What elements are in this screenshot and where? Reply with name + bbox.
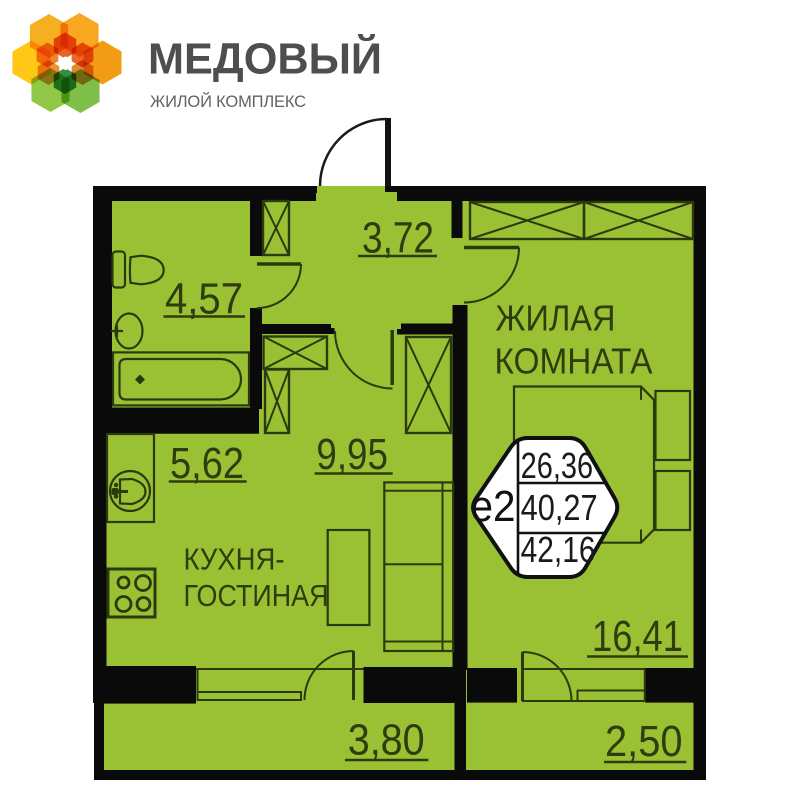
svg-text:КОМНАТА: КОМНАТА [495,341,653,382]
svg-text:26,36: 26,36 [521,445,594,486]
svg-text:3,80: 3,80 [348,716,425,765]
svg-text:е2: е2 [471,482,516,531]
svg-text:9,95: 9,95 [316,430,388,479]
svg-text:2,50: 2,50 [605,717,683,766]
svg-text:МЕДОВЫЙ: МЕДОВЫЙ [148,33,382,84]
svg-text:ЖИЛОЙ КОМПЛЕКС: ЖИЛОЙ КОМПЛЕКС [150,92,306,111]
svg-text:КУХНЯ-: КУХНЯ- [184,542,285,577]
svg-text:42,16: 42,16 [521,529,596,570]
svg-text:40,27: 40,27 [521,487,598,528]
svg-text:ГОСТИНАЯ: ГОСТИНАЯ [184,578,329,613]
svg-text:16,41: 16,41 [592,612,683,661]
svg-text:ЖИЛАЯ: ЖИЛАЯ [496,298,616,339]
